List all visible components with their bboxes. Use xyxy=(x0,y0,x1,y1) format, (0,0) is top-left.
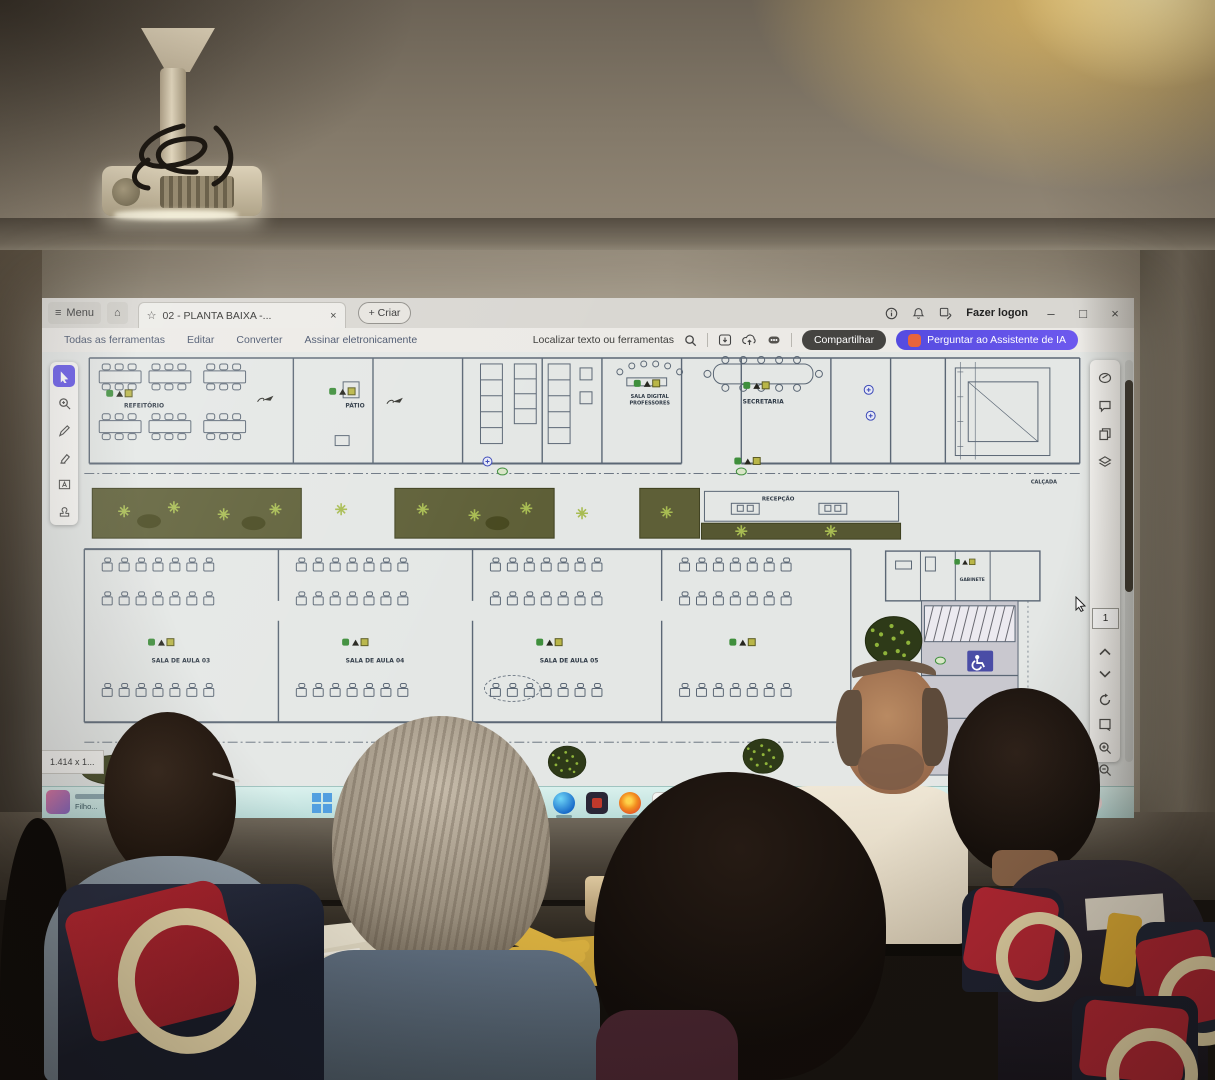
stamp-icon xyxy=(58,505,71,518)
login-button[interactable]: Fazer logon xyxy=(966,307,1028,319)
layers-icon[interactable] xyxy=(1095,452,1115,472)
room-label-professores: PROFESSORES xyxy=(629,401,670,407)
info-icon[interactable] xyxy=(885,307,898,320)
chevron-up-icon[interactable] xyxy=(1095,642,1115,662)
ai-assistant-icon xyxy=(908,334,921,347)
left-wall xyxy=(0,250,42,830)
presenter-beard xyxy=(858,744,924,790)
document-tab[interactable]: ☆ 02 - PLANTA BAIXA -... × xyxy=(138,302,346,329)
presenter-hair xyxy=(836,690,862,766)
room-label-sala05: SALA DE AULA 05 xyxy=(540,658,599,665)
apps-icon[interactable] xyxy=(939,307,952,320)
acrobat-titlebar: ≡ Menu ⌂ ☆ 02 - PLANTA BAIXA -... × + Cr… xyxy=(42,298,1134,328)
pages-icon[interactable] xyxy=(1095,424,1115,444)
projector-cables xyxy=(88,120,278,200)
mouse-pointer xyxy=(1074,596,1088,612)
firefox-browser-icon[interactable] xyxy=(619,792,641,814)
room-label-patio: PÁTIO xyxy=(345,403,364,410)
sign-menu[interactable]: Assinar eletronicamente xyxy=(305,334,418,346)
page-size-indicator: 1.414 x 1... xyxy=(42,750,104,774)
cloud-upload-icon[interactable] xyxy=(742,333,757,347)
running-indicator xyxy=(556,815,572,818)
left-tool-rail xyxy=(50,362,78,525)
divider xyxy=(707,333,708,347)
ai-assistant-button[interactable]: Perguntar ao Assistente de IA xyxy=(896,330,1078,350)
right-wall xyxy=(1140,250,1215,830)
start-icon xyxy=(312,804,321,813)
right-tool-rail xyxy=(1090,360,1120,762)
star-icon: ☆ xyxy=(147,309,157,322)
scrollbar-thumb[interactable] xyxy=(1125,380,1133,592)
menu-label: Menu xyxy=(66,307,94,319)
close-tab-icon[interactable]: × xyxy=(330,310,336,322)
maximize-button[interactable]: □ xyxy=(1074,306,1092,321)
taskbar-widget[interactable]: Filho... xyxy=(46,790,113,814)
annotate-icon[interactable] xyxy=(1095,368,1115,388)
room-label-calcada: CALÇADA xyxy=(1031,479,1057,485)
search-label[interactable]: Localizar texto ou ferramentas xyxy=(533,334,674,346)
menu-button[interactable]: ≡ Menu xyxy=(48,302,101,324)
projector-light xyxy=(114,210,238,220)
attendee-hair-center xyxy=(332,716,550,970)
start-icon xyxy=(323,793,332,802)
bell-icon[interactable] xyxy=(912,307,925,320)
convert-menu[interactable]: Converter xyxy=(236,334,282,346)
cursor-icon xyxy=(58,370,71,383)
comment-icon[interactable] xyxy=(1095,396,1115,416)
pen-tool[interactable] xyxy=(53,419,75,441)
room-label-sala-digital: SALA DIGITAL xyxy=(631,394,670,400)
start-icon xyxy=(312,793,321,802)
projector-mount-cone xyxy=(136,28,220,72)
attendee-head-right xyxy=(948,688,1100,874)
add-text-tool[interactable] xyxy=(53,473,75,495)
presenter-hair xyxy=(922,688,948,766)
attendee-body-woman xyxy=(596,1010,738,1080)
snapshot-icon[interactable] xyxy=(1095,714,1115,734)
download-icon[interactable] xyxy=(718,333,732,347)
media-app-icon[interactable] xyxy=(586,792,608,814)
close-window-button[interactable]: × xyxy=(1106,306,1124,321)
more-tools-icon[interactable] xyxy=(767,333,781,347)
edge-browser-icon[interactable] xyxy=(553,792,575,814)
all-tools-menu[interactable]: Todas as ferramentas xyxy=(64,334,165,346)
create-button[interactable]: + Criar xyxy=(358,302,412,324)
highlighter-icon xyxy=(58,451,71,464)
chevron-down-icon[interactable] xyxy=(1095,664,1115,684)
divider xyxy=(791,333,792,347)
text-box-icon xyxy=(58,478,71,491)
magnifier-icon xyxy=(58,397,71,410)
conference-room-photo: ≡ Menu ⌂ ☆ 02 - PLANTA BAIXA -... × + Cr… xyxy=(0,0,1215,1080)
zoom-tool[interactable] xyxy=(53,392,75,414)
start-button[interactable] xyxy=(312,793,332,813)
room-label-recepcao: RECEPÇÃO xyxy=(762,495,795,502)
widget-thumbnail xyxy=(46,790,70,814)
room-label-refeitorio: REFEITÓRIO xyxy=(124,403,164,410)
create-label: + Criar xyxy=(369,307,401,319)
rotate-icon[interactable] xyxy=(1095,690,1115,710)
attendee-body-center xyxy=(294,950,600,1080)
edit-menu[interactable]: Editar xyxy=(187,334,214,346)
document-tab-title: 02 - PLANTA BAIXA -... xyxy=(162,310,324,322)
minimize-button[interactable]: – xyxy=(1042,306,1060,321)
search-icon[interactable] xyxy=(684,334,697,347)
select-tool[interactable] xyxy=(53,365,75,387)
room-label-gabinete: GABINETE xyxy=(960,577,985,583)
room-label-sala04: SALA DE AULA 04 xyxy=(346,658,405,665)
highlighter-tool[interactable] xyxy=(53,446,75,468)
room-label-sala03: SALA DE AULA 03 xyxy=(152,658,211,665)
zoom-in-icon[interactable] xyxy=(1095,738,1115,758)
ai-assistant-label: Perguntar ao Assistente de IA xyxy=(927,334,1066,346)
share-label: Compartilhar xyxy=(814,334,874,346)
home-icon: ⌂ xyxy=(114,307,121,319)
home-button[interactable]: ⌂ xyxy=(107,302,128,324)
share-button[interactable]: Compartilhar xyxy=(802,330,886,350)
acrobat-toolbar: Todas as ferramentas Editar Converter As… xyxy=(42,328,1134,353)
ceiling-projector xyxy=(88,28,278,228)
pen-icon xyxy=(58,424,71,437)
start-icon xyxy=(323,804,332,813)
room-label-secretaria: SECRETARIA xyxy=(743,399,784,406)
page-number-box[interactable]: 1 xyxy=(1092,608,1119,629)
hamburger-icon: ≡ xyxy=(55,307,61,319)
stamp-tool[interactable] xyxy=(53,500,75,522)
